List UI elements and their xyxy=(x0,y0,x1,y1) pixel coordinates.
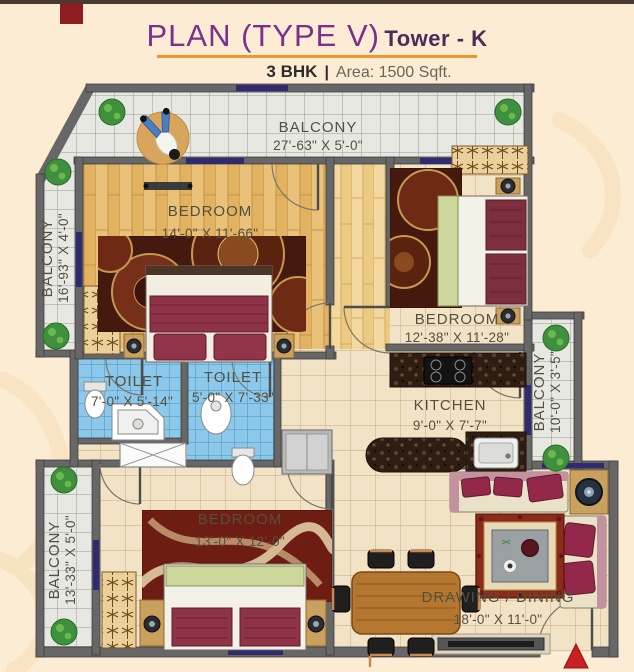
svg-text:13'-33" X 5'-0": 13'-33" X 5'-0" xyxy=(63,515,78,605)
svg-text:BALCONY: BALCONY xyxy=(46,521,63,600)
svg-text:KITCHEN: KITCHEN xyxy=(414,397,487,414)
svg-text:27'-63" X 5'-0": 27'-63" X 5'-0" xyxy=(273,138,363,153)
subtitle-separator: | xyxy=(324,64,328,81)
svg-text:TOILET: TOILET xyxy=(105,373,163,390)
svg-text:9'-0" X 7'-7": 9'-0" X 7'-7" xyxy=(413,418,487,433)
plan-header: PLAN (TYPE V) Tower - K 3 BHK|Area: 1500… xyxy=(0,18,634,82)
svg-text:BALCONY: BALCONY xyxy=(39,219,56,298)
svg-text:BEDROOM: BEDROOM xyxy=(415,311,500,328)
bottom-bedroom-furniture xyxy=(140,510,340,650)
right-bedroom-furniture xyxy=(378,168,528,324)
svg-text:13'-0" X 12'-0": 13'-0" X 12'-0" xyxy=(195,534,285,549)
bhk-label: 3 BHK xyxy=(266,62,317,81)
title-underline xyxy=(157,55,477,58)
tower-label: Tower - K xyxy=(384,26,487,51)
label-balcony-left-upper: BALCONY 16'-93" X 4'-0" xyxy=(39,213,71,303)
svg-text:BALCONY: BALCONY xyxy=(279,119,358,136)
plan-subtitle: 3 BHK|Area: 1500 Sqft. xyxy=(42,62,634,82)
svg-text:10'-0" X 3'-5": 10'-0" X 3'-5" xyxy=(548,351,563,433)
plan-title: PLAN (TYPE V) xyxy=(146,18,380,53)
svg-text:16'-93" X 4'-0": 16'-93" X 4'-0" xyxy=(56,213,71,303)
svg-text:14'-0" X 11'-66": 14'-0" X 11'-66" xyxy=(162,226,259,241)
floor-plan-drawing: BALCONY 27'-63" X 5'-0" BALCONY 16'-93" … xyxy=(0,0,634,672)
svg-text:BEDROOM: BEDROOM xyxy=(198,511,283,528)
shaft-box xyxy=(120,443,186,467)
svg-text:BEDROOM: BEDROOM xyxy=(168,203,253,220)
area-label: Area: 1500 Sqft. xyxy=(336,64,452,81)
svg-text:18'-0" X 11'-0": 18'-0" X 11'-0" xyxy=(454,612,543,627)
svg-text:12'-38" X 11'-28": 12'-38" X 11'-28" xyxy=(405,330,509,345)
label-balcony-left-lower: BALCONY 13'-33" X 5'-0" xyxy=(46,515,78,605)
svg-text:7'-0" X 5'-14": 7'-0" X 5'-14" xyxy=(91,394,173,409)
svg-text:DRAWING / DINING: DRAWING / DINING xyxy=(422,589,575,606)
label-balcony-right: BALCONY 10'-0" X 3'-5" xyxy=(531,351,563,433)
svg-text:5'-0" X 7'-33": 5'-0" X 7'-33" xyxy=(192,390,274,405)
plan-title-line: PLAN (TYPE V) Tower - K xyxy=(0,18,634,54)
floor-plan-page: PLAN (TYPE V) Tower - K 3 BHK|Area: 1500… xyxy=(0,0,634,672)
svg-text:BALCONY: BALCONY xyxy=(531,353,548,432)
svg-text:TOILET: TOILET xyxy=(204,369,262,386)
